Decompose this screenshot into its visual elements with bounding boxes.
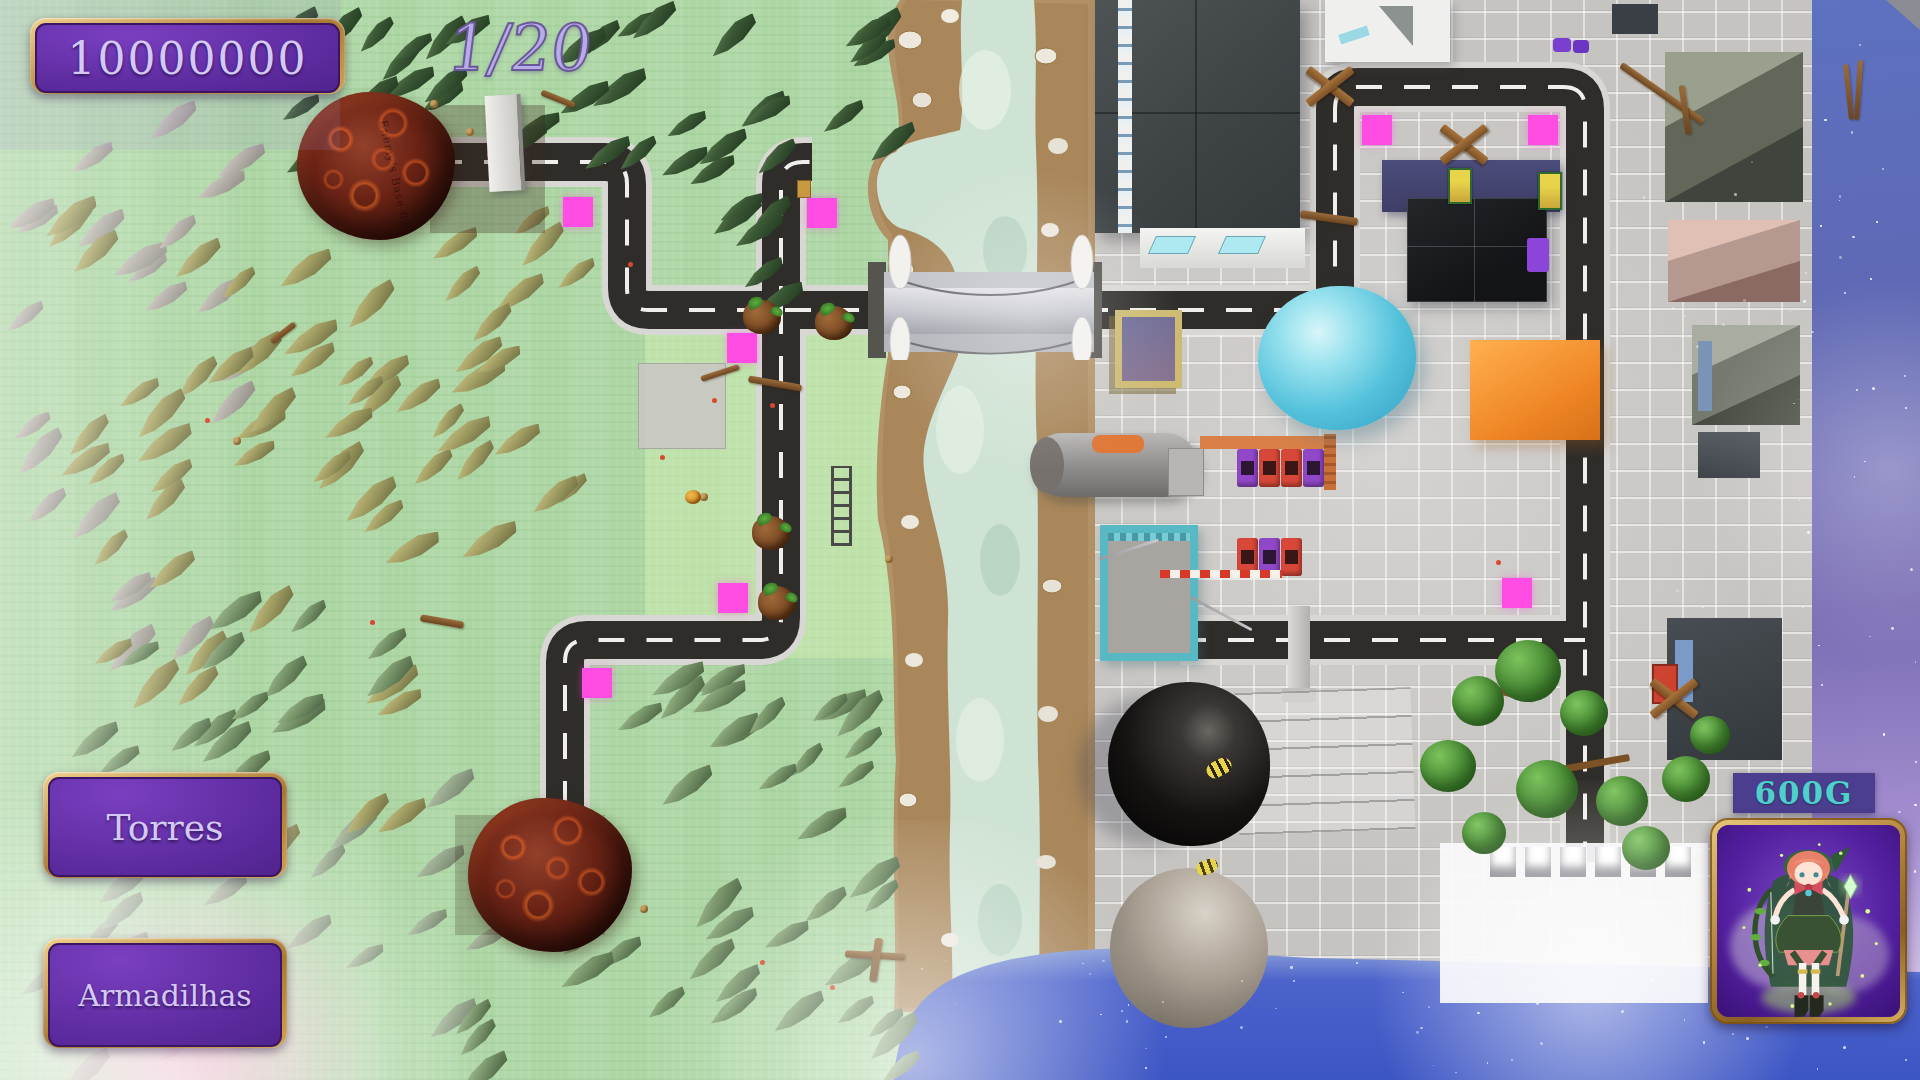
- park-tree: [1560, 690, 1608, 736]
- white-pavilion: [1440, 843, 1708, 1003]
- berry: [830, 985, 835, 990]
- build-spot[interactable]: [582, 668, 612, 698]
- sky-speckle: [1891, 627, 1894, 630]
- spawn-gate: [485, 94, 526, 192]
- towers-button[interactable]: Torres: [43, 772, 287, 878]
- pebble-dot: [233, 437, 241, 445]
- sky-speckle: [1743, 299, 1746, 302]
- sky-speckle: [1676, 589, 1679, 592]
- park-tree: [1462, 812, 1506, 854]
- park-tree: [1452, 676, 1504, 726]
- sky-speckle: [1803, 300, 1806, 303]
- sky-speckle: [1241, 980, 1243, 982]
- build-spot[interactable]: [1362, 115, 1392, 145]
- market-stall: [1259, 449, 1280, 487]
- pebble-dot: [885, 555, 893, 563]
- sky-speckle: [1275, 1008, 1276, 1009]
- enemy-base: [468, 798, 632, 952]
- wood-barricade: [1646, 678, 1702, 722]
- sky-speckle: [1839, 256, 1842, 259]
- purple-prop: [1527, 238, 1549, 272]
- sky-speckle: [1468, 966, 1469, 967]
- market-stall: [1281, 538, 1302, 576]
- sky-speckle: [1799, 499, 1801, 501]
- pebble-dot: [640, 905, 648, 913]
- gray-box: [1168, 448, 1204, 496]
- wall-poster: [1448, 168, 1472, 204]
- sky-speckle: [1722, 323, 1725, 326]
- sky-speckle: [1820, 225, 1822, 227]
- score-badge: 10000000: [30, 18, 345, 94]
- sky-speckle: [1807, 531, 1810, 534]
- sky-speckle: [1882, 168, 1883, 169]
- sky-speckle: [1904, 375, 1906, 377]
- pebble-dot: [466, 128, 474, 136]
- berry: [1496, 560, 1501, 565]
- enemy-base: Enemy's Base 02: [297, 92, 455, 240]
- sky-speckle: [1684, 1019, 1685, 1020]
- build-spot[interactable]: [1528, 115, 1558, 145]
- traps-button-label: Armadilhas: [48, 943, 282, 1047]
- gray-sphere: [1110, 868, 1268, 1028]
- build-spot[interactable]: [718, 583, 748, 613]
- market-stall: [1237, 449, 1258, 487]
- sky-speckle: [1433, 1065, 1434, 1066]
- dark-building-roof: [1095, 0, 1300, 233]
- sky-speckle: [1643, 196, 1646, 199]
- sky-speckle: [955, 953, 956, 954]
- enemy-unit: [743, 300, 781, 334]
- sky-speckle: [1898, 811, 1901, 814]
- purple-prop: [1573, 40, 1589, 53]
- corner-roof: [1886, 0, 1920, 30]
- sky-speckle: [1145, 1067, 1146, 1068]
- wood-barricade: [1436, 124, 1492, 168]
- sky-speckle: [1914, 870, 1916, 872]
- teal-building: [1100, 525, 1198, 661]
- sky-speckle: [1869, 636, 1871, 638]
- sky-speckle: [1165, 1036, 1167, 1038]
- berry: [628, 262, 633, 267]
- pebble-dot: [700, 493, 708, 501]
- sky-speckle: [1811, 331, 1813, 333]
- pyramid-building: [1668, 220, 1800, 302]
- striped-barrier: [1160, 570, 1282, 578]
- build-spot[interactable]: [807, 198, 837, 228]
- enemy-unit: [815, 306, 853, 340]
- dark-prop: [1612, 4, 1658, 34]
- market-stall: [1281, 449, 1302, 487]
- park-tree: [1495, 640, 1561, 702]
- park-tree: [1420, 740, 1476, 792]
- sky-speckle: [1765, 1026, 1768, 1029]
- gold-display: 600G: [1733, 773, 1875, 813]
- purple-prop: [1553, 38, 1571, 52]
- sky-speckle: [1162, 1001, 1164, 1003]
- sky-speckle: [1428, 1006, 1430, 1008]
- build-spot[interactable]: [563, 197, 593, 227]
- sky-speckle: [1883, 733, 1885, 735]
- pyramid-building: [1692, 325, 1800, 425]
- sky-speckle: [1751, 161, 1753, 163]
- market-stall: [1303, 449, 1324, 487]
- wood-barricade: [1302, 66, 1358, 110]
- bridge: [860, 230, 1110, 360]
- cyan-sphere: [1258, 286, 1416, 430]
- park-tree: [1662, 756, 1710, 802]
- enemy-unit: [758, 586, 796, 620]
- building-glass-base: [1140, 228, 1305, 268]
- hero-portrait-art: [1717, 825, 1900, 1017]
- sky-speckle: [1746, 1037, 1749, 1040]
- bee-prop: [1204, 755, 1234, 781]
- sky-speckle: [1487, 1062, 1488, 1063]
- stall-wall: [1324, 434, 1336, 490]
- hero-portrait-card[interactable]: [1710, 818, 1907, 1024]
- build-spot[interactable]: [727, 333, 757, 363]
- berry: [712, 398, 717, 403]
- pebble-dot: [430, 100, 438, 108]
- towers-button-label: Torres: [48, 777, 282, 877]
- sky-speckle: [1511, 1059, 1513, 1061]
- wave-counter: 1/20: [419, 0, 621, 95]
- sky-speckle: [1290, 966, 1292, 968]
- park-tree: [1516, 760, 1578, 818]
- river-gate-marker: [797, 180, 811, 198]
- sky-speckle: [1872, 387, 1875, 390]
- game-viewport: 10000000 1/20 Torres Armadilhas 600G: [0, 0, 1920, 1080]
- orange-building: [1470, 340, 1600, 440]
- dark-box-building: [1698, 432, 1760, 478]
- sky-speckle: [945, 960, 946, 961]
- white-building: [1325, 0, 1450, 62]
- traps-button[interactable]: Armadilhas: [43, 938, 287, 1048]
- monument-pillar: [1288, 606, 1310, 692]
- berry: [770, 403, 775, 408]
- sky-speckle: [1876, 221, 1877, 222]
- score-value: 10000000: [35, 23, 340, 93]
- sky-speckle: [1870, 278, 1872, 280]
- sky-speckle: [1121, 1010, 1123, 1012]
- black-sphere: [1108, 682, 1270, 846]
- sky-speckle: [1734, 193, 1737, 196]
- river-ladder: [831, 466, 852, 546]
- critter-unit: [685, 490, 701, 504]
- build-spot[interactable]: [1502, 578, 1532, 608]
- sky-speckle: [1864, 461, 1865, 462]
- berry: [370, 620, 375, 625]
- enemy-base-label: Enemy's Base 02: [376, 119, 412, 229]
- sky-speckle: [921, 968, 923, 970]
- berry: [660, 455, 665, 460]
- sky-speckle: [1802, 606, 1804, 608]
- park-tree: [1622, 826, 1670, 870]
- stall-counter: [1200, 436, 1332, 449]
- yellow-frame-structure: [1115, 310, 1182, 388]
- sky-speckle: [1356, 962, 1358, 964]
- berry: [205, 418, 210, 423]
- berry: [760, 960, 765, 965]
- park-tree: [1596, 776, 1648, 826]
- black-building: [1407, 198, 1547, 302]
- enemy-unit: [752, 516, 790, 550]
- sky-speckle: [1100, 1014, 1101, 1015]
- wall-poster: [1538, 172, 1562, 210]
